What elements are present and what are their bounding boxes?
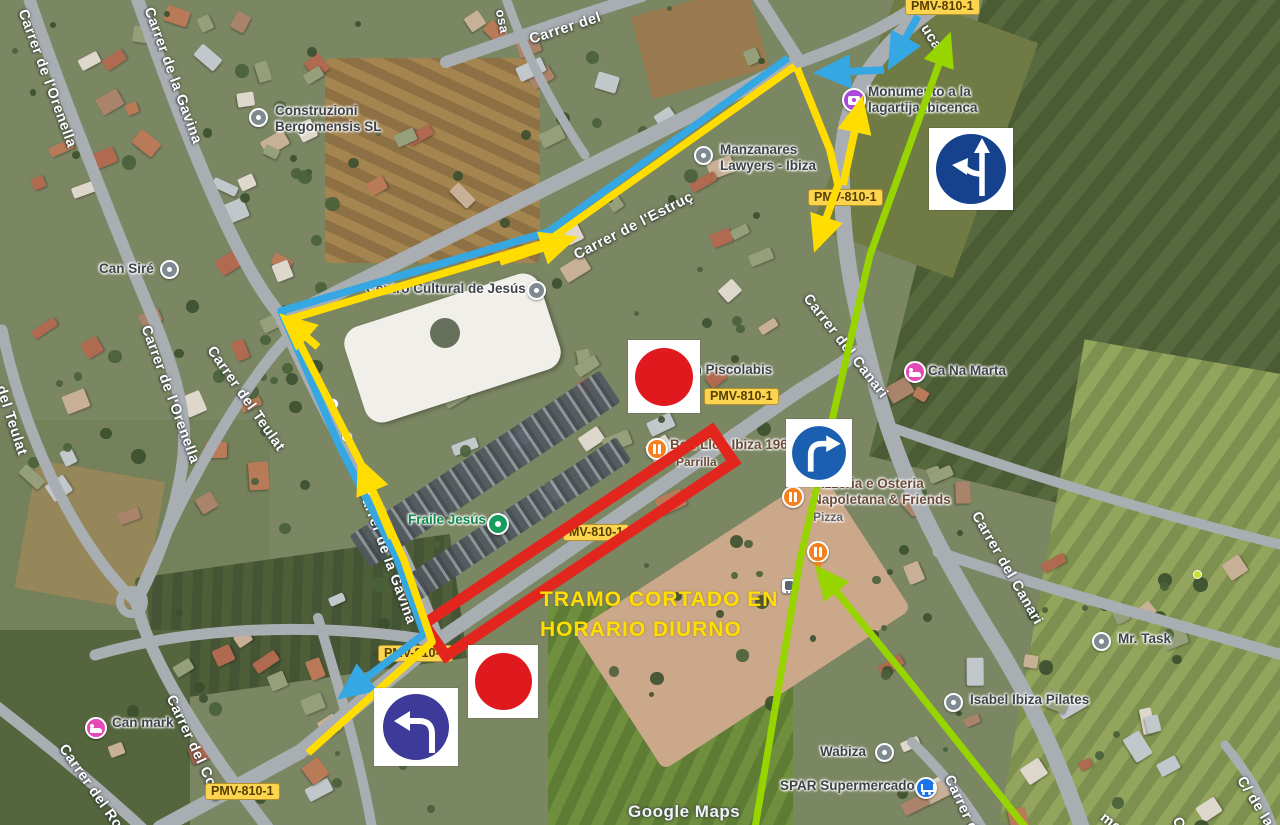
closure-caption-line1: TRAMO CORTADO EN [540,588,778,612]
map-canvas[interactable]: Carrer de l'Orenella Carrer de la Gavina… [0,0,1280,825]
turn-left-sign [374,688,458,766]
turn-left-arrow-icon [381,692,451,762]
straight-or-left-arrow-icon [934,132,1008,206]
no-entry-sign [628,340,700,413]
straight-or-left-sign [929,128,1013,210]
turn-right-sign [786,419,852,487]
turn-right-arrow-icon [790,424,848,482]
signs-layer: TRAMO CORTADO EN HORARIO DIURNO Google M… [0,0,1280,825]
google-maps-watermark: Google Maps [628,802,740,822]
closure-caption-line2: HORARIO DIURNO [540,618,742,642]
no-entry-sign [468,645,538,718]
